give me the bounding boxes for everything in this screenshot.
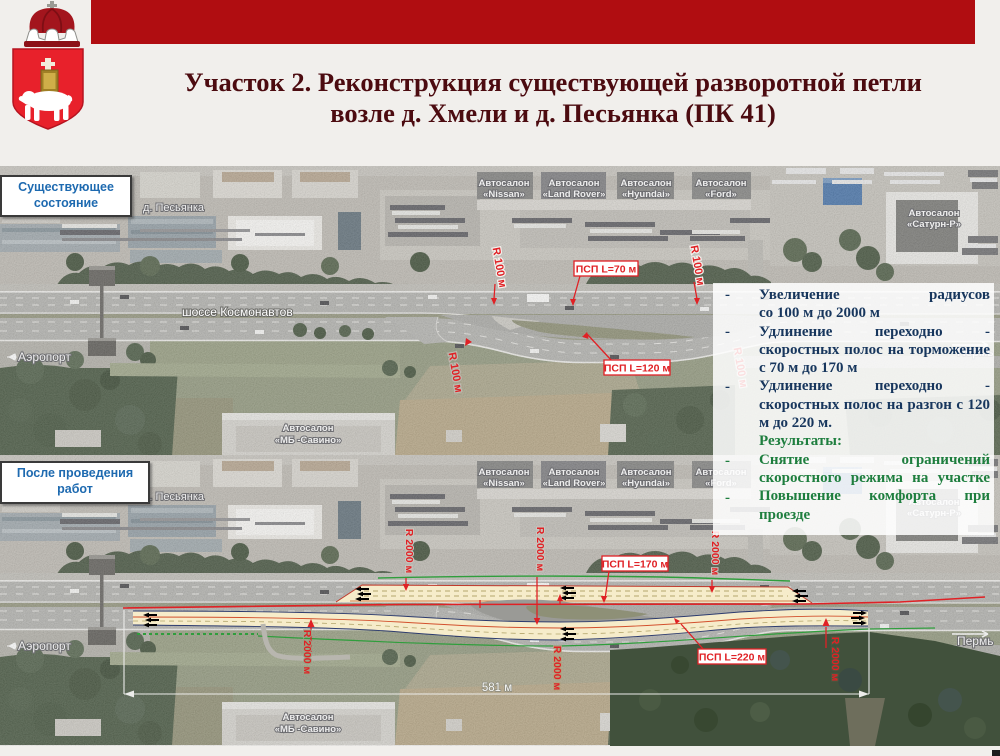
svg-text:ПСП L=120 м: ПСП L=120 м (604, 363, 671, 375)
svg-text:R 2000 м: R 2000 м (534, 527, 546, 572)
svg-text:шоссе Космонавтов: шоссе Космонавтов (182, 305, 293, 319)
svg-text:581 м: 581 м (482, 682, 512, 694)
svg-text:R 2000 м: R 2000 м (403, 529, 415, 574)
svg-text:ПСП L=70 м: ПСП L=70 м (576, 264, 637, 276)
svg-text:R 2000 м: R 2000 м (709, 531, 721, 576)
svg-text:ПСП L=220 м: ПСП L=220 м (699, 652, 766, 664)
svg-text:R 2000 м: R 2000 м (829, 637, 841, 682)
svg-text:R 2000 м: R 2000 м (551, 646, 563, 691)
svg-text:R 2000 м: R 2000 м (301, 630, 313, 675)
svg-text:ПСП L=170 м: ПСП L=170 м (602, 559, 669, 571)
